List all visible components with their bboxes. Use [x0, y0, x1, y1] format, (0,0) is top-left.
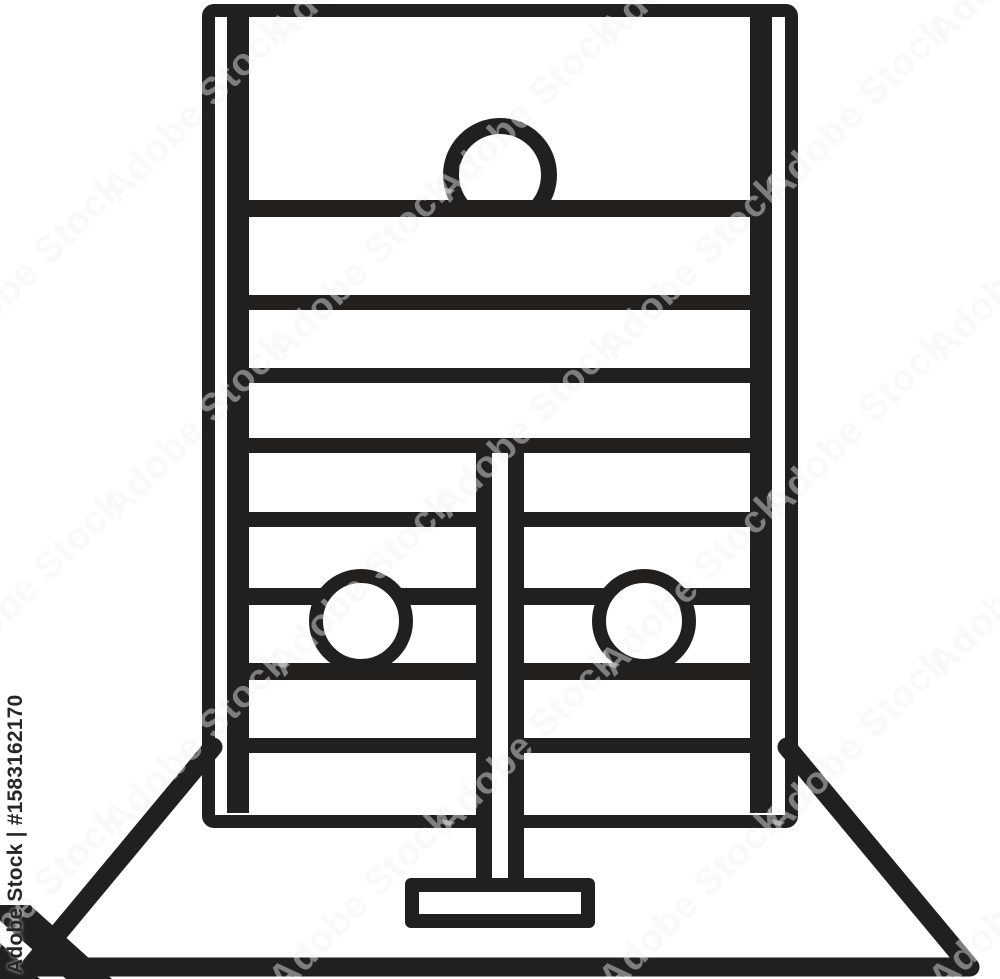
board-slat-4	[240, 438, 760, 453]
right-hand-hole-circle	[592, 569, 696, 673]
board-slat-1	[240, 200, 760, 217]
center-post-right-line	[508, 440, 524, 878]
center-post-gap	[492, 453, 508, 878]
watermark-side-label: Adobe Stock | #1583162170	[4, 695, 28, 974]
left-hand-hole-circle	[309, 569, 413, 673]
stock-image-preview: Adobe Stock | #1583162170 Adobe StockAdo…	[0, 0, 1000, 979]
pillory-right-post	[750, 15, 772, 813]
pillory-left-post	[227, 15, 249, 813]
center-post-left-line	[476, 440, 492, 878]
post-base	[405, 878, 595, 928]
board-slat-3	[240, 368, 760, 383]
board-slat-2	[240, 295, 760, 310]
